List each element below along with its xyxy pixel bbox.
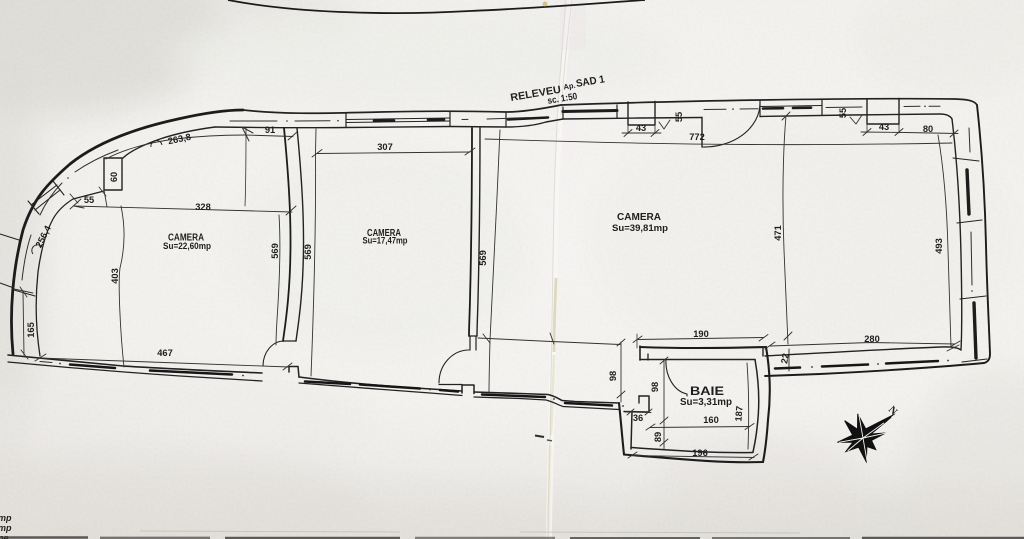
svg-text:43: 43 — [879, 122, 889, 132]
svg-text:89: 89 — [653, 432, 663, 442]
svg-text:403: 403 — [110, 268, 120, 284]
svg-text:569: 569 — [478, 250, 488, 266]
svg-text:mp: mp — [0, 523, 12, 533]
svg-text:80: 80 — [923, 124, 933, 134]
svg-text:196: 196 — [692, 448, 708, 458]
svg-text:CAMERA: CAMERA — [617, 211, 661, 223]
svg-text:328: 328 — [195, 202, 211, 212]
svg-text:98: 98 — [650, 382, 660, 392]
svg-text:36: 36 — [633, 413, 643, 423]
svg-text:55: 55 — [674, 112, 684, 122]
svg-text:98: 98 — [608, 371, 618, 381]
svg-text:22: 22 — [779, 353, 791, 365]
svg-text:190: 190 — [693, 329, 709, 339]
svg-text:569: 569 — [270, 243, 280, 259]
svg-text:Su=3,31mp: Su=3,31mp — [680, 396, 732, 408]
svg-text:493: 493 — [934, 238, 944, 254]
svg-text:280: 280 — [864, 334, 880, 344]
svg-text:160: 160 — [703, 415, 719, 425]
svg-text:471: 471 — [773, 225, 783, 241]
svg-text:55: 55 — [84, 195, 94, 205]
svg-text:Su=39,81mp: Su=39,81mp — [612, 223, 668, 234]
svg-text:60: 60 — [109, 172, 119, 182]
svg-text:mp: mp — [0, 513, 12, 523]
svg-text:772: 772 — [689, 132, 705, 142]
svg-text:91: 91 — [265, 125, 275, 135]
svg-text:Su=17,47mp: Su=17,47mp — [363, 236, 408, 247]
svg-text:43: 43 — [636, 123, 646, 133]
svg-text:55: 55 — [838, 108, 848, 118]
svg-text:187: 187 — [733, 406, 744, 422]
svg-text:569: 569 — [303, 244, 313, 260]
svg-text:Su=22,60mp: Su=22,60mp — [163, 241, 211, 252]
svg-text:467: 467 — [157, 348, 173, 358]
svg-text:307: 307 — [377, 142, 393, 152]
svg-text:165: 165 — [26, 322, 36, 338]
